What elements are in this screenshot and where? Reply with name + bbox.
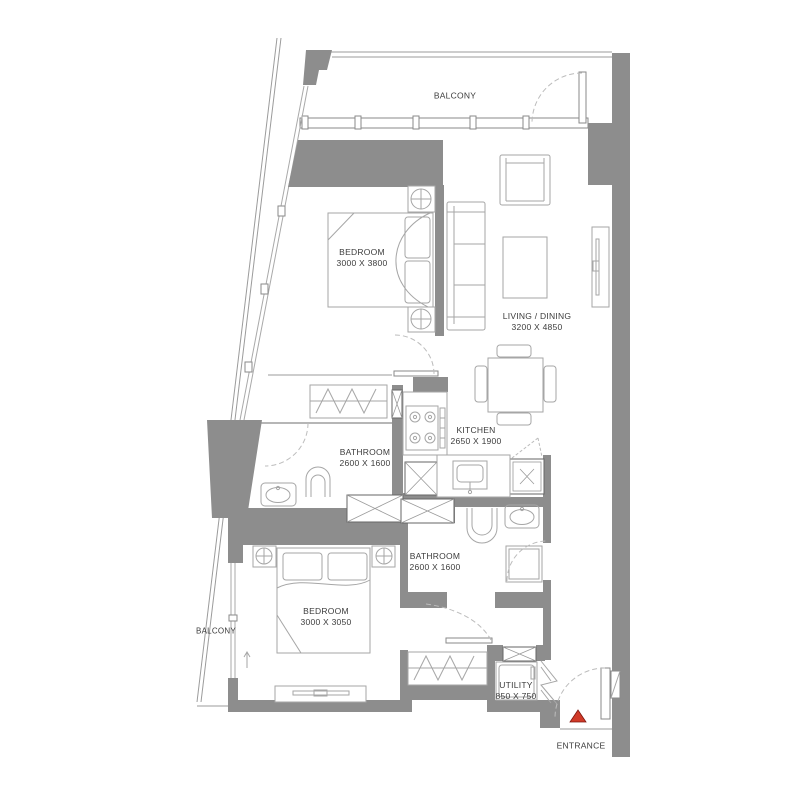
washbasin-icon — [505, 505, 539, 528]
room-label-balcony-left: BALCONY — [196, 626, 236, 637]
bedroom-1-door-icon — [394, 335, 438, 376]
room-label-entrance: ENTRANCE — [557, 741, 606, 752]
furniture-layer — [244, 155, 609, 704]
room-label-bathroom-1: BATHROOM 2600 X 1600 — [340, 447, 391, 469]
toilet-icon — [306, 467, 330, 497]
shaft-icon — [401, 499, 454, 523]
room-dims: 3200 X 4850 — [503, 322, 571, 333]
room-name: BEDROOM — [303, 606, 349, 616]
shower-tray-icon — [510, 438, 544, 494]
room-label-kitchen: KITCHEN 2650 X 1900 — [451, 425, 502, 447]
entrance-door-icon — [555, 668, 620, 719]
room-name: LIVING / DINING — [503, 311, 571, 321]
washbasin-icon — [261, 483, 296, 506]
armchair-icon — [500, 155, 550, 205]
bed-icon — [277, 548, 370, 653]
room-name: ENTRANCE — [557, 741, 606, 751]
room-name: KITCHEN — [456, 425, 495, 435]
room-name: BEDROOM — [339, 247, 385, 257]
floor-plan-drawing — [0, 0, 800, 800]
room-dims: 2650 X 1900 — [451, 436, 502, 447]
room-name: BATHROOM — [340, 447, 390, 457]
tv-unit-icon — [275, 686, 366, 702]
room-label-living-dining: LIVING / DINING 3200 X 4850 — [503, 311, 571, 333]
room-label-balcony-top: BALCONY — [434, 91, 476, 102]
room-dims: 850 X 750 — [495, 691, 536, 702]
entrance-marker — [570, 710, 586, 722]
shaft-icon — [405, 462, 437, 495]
room-label-bathroom-2: BATHROOM 2600 X 1600 — [410, 551, 461, 573]
shaft-icon — [347, 495, 403, 522]
tv-unit-icon — [592, 227, 609, 307]
room-name: BALCONY — [434, 91, 476, 101]
room-dims: 3000 X 3050 — [301, 617, 352, 628]
shaft-icon — [392, 390, 402, 418]
room-dims: 2600 X 1600 — [340, 458, 391, 469]
bedroom-2-door-icon — [426, 604, 492, 643]
wardrobe-icon — [310, 385, 387, 418]
shaft-icon — [503, 647, 536, 661]
room-label-bedroom-1: BEDROOM 3000 X 3800 — [337, 247, 388, 269]
bathroom-1-door-icon — [265, 423, 308, 466]
room-name: BALCONY — [196, 627, 236, 636]
floor-plan-canvas: BALCONY BEDROOM 3000 X 3800 LIVING / DIN… — [0, 0, 800, 800]
room-label-bedroom-2: BEDROOM 3000 X 3050 — [301, 606, 352, 628]
room-dims: 2600 X 1600 — [410, 562, 461, 573]
shower-tray-icon — [506, 546, 542, 582]
room-dims: 3000 X 3800 — [337, 258, 388, 269]
door-swing-arrow-icon — [244, 652, 250, 668]
bifold-door-icon — [541, 661, 557, 704]
room-name: UTILITY — [499, 680, 532, 690]
wardrobe-icon — [408, 652, 487, 685]
room-name: BATHROOM — [410, 551, 460, 561]
balcony-door-icon — [532, 72, 586, 123]
room-label-utility: UTILITY 850 X 750 — [495, 680, 536, 702]
sofa-icon — [447, 202, 485, 330]
coffee-table-icon — [503, 237, 547, 298]
dining-set-icon — [475, 345, 556, 425]
bathroom-2-door-icon — [507, 541, 547, 581]
toilet-icon — [467, 508, 497, 543]
